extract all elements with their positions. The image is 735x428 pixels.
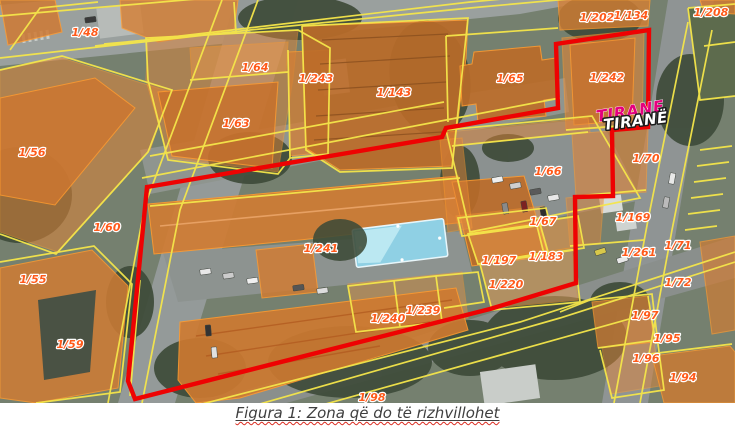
figure-caption: Figura 1: Zona që do të rizhvillohet — [236, 404, 500, 422]
parcel-label-1-94: 1/94 — [670, 371, 697, 384]
parcel-label-1-64: 1/64 — [242, 61, 269, 74]
parcel-label-1-169: 1/169 — [616, 211, 651, 224]
figure-page: 1/481/2021/1341/2081/641/2431/1431/651/2… — [0, 0, 735, 428]
parcel-label-1-241: 1/241 — [304, 242, 339, 255]
caption-row: Figura 1: Zona që do të rizhvillohet — [0, 403, 735, 428]
parcel-label-1-240: 1/240 — [371, 312, 406, 325]
parcel-label-1-202: 1/202 — [580, 11, 615, 24]
parcel-label-1-197: 1/197 — [482, 254, 517, 267]
parcel-label-1-60: 1/60 — [94, 221, 121, 234]
parcel-label-1-65: 1/65 — [497, 72, 524, 85]
parcel-label-1-95: 1/95 — [654, 332, 681, 345]
aerial-cadastral-map: 1/481/2021/1341/2081/641/2431/1431/651/2… — [0, 0, 735, 403]
parcel-label-1-63: 1/63 — [223, 117, 250, 130]
parcel-label-1-96: 1/96 — [633, 352, 660, 365]
parcel-label-1-72: 1/72 — [665, 276, 692, 289]
parcel-label-1-71: 1/71 — [665, 239, 692, 252]
parcel-label-1-243: 1/243 — [299, 72, 334, 85]
parcel-label-1-59: 1/59 — [57, 338, 84, 351]
parcel-label-1-220: 1/220 — [489, 278, 524, 291]
parcel-label-1-67: 1/67 — [530, 215, 557, 228]
parcel-label-1-183: 1/183 — [529, 250, 564, 263]
parcel-label-1-70: 1/70 — [633, 152, 660, 165]
parcel-label-1-134: 1/134 — [614, 9, 649, 22]
parcel-label-1-56: 1/56 — [19, 146, 46, 159]
parcel-label-1-261: 1/261 — [622, 246, 657, 259]
parcel-label-1-55: 1/55 — [20, 273, 47, 286]
parcel-label-1-143: 1/143 — [377, 86, 412, 99]
parcel-label-1-242: 1/242 — [590, 71, 625, 84]
parcel-label-1-98: 1/98 — [359, 391, 386, 403]
parcel-label-1-48: 1/48 — [72, 26, 99, 39]
parcel-label-1-239: 1/239 — [406, 304, 441, 317]
parcel-label-1-97: 1/97 — [632, 309, 659, 322]
parcel-label-1-208: 1/208 — [694, 6, 729, 19]
parcel-label-1-66: 1/66 — [535, 165, 562, 178]
